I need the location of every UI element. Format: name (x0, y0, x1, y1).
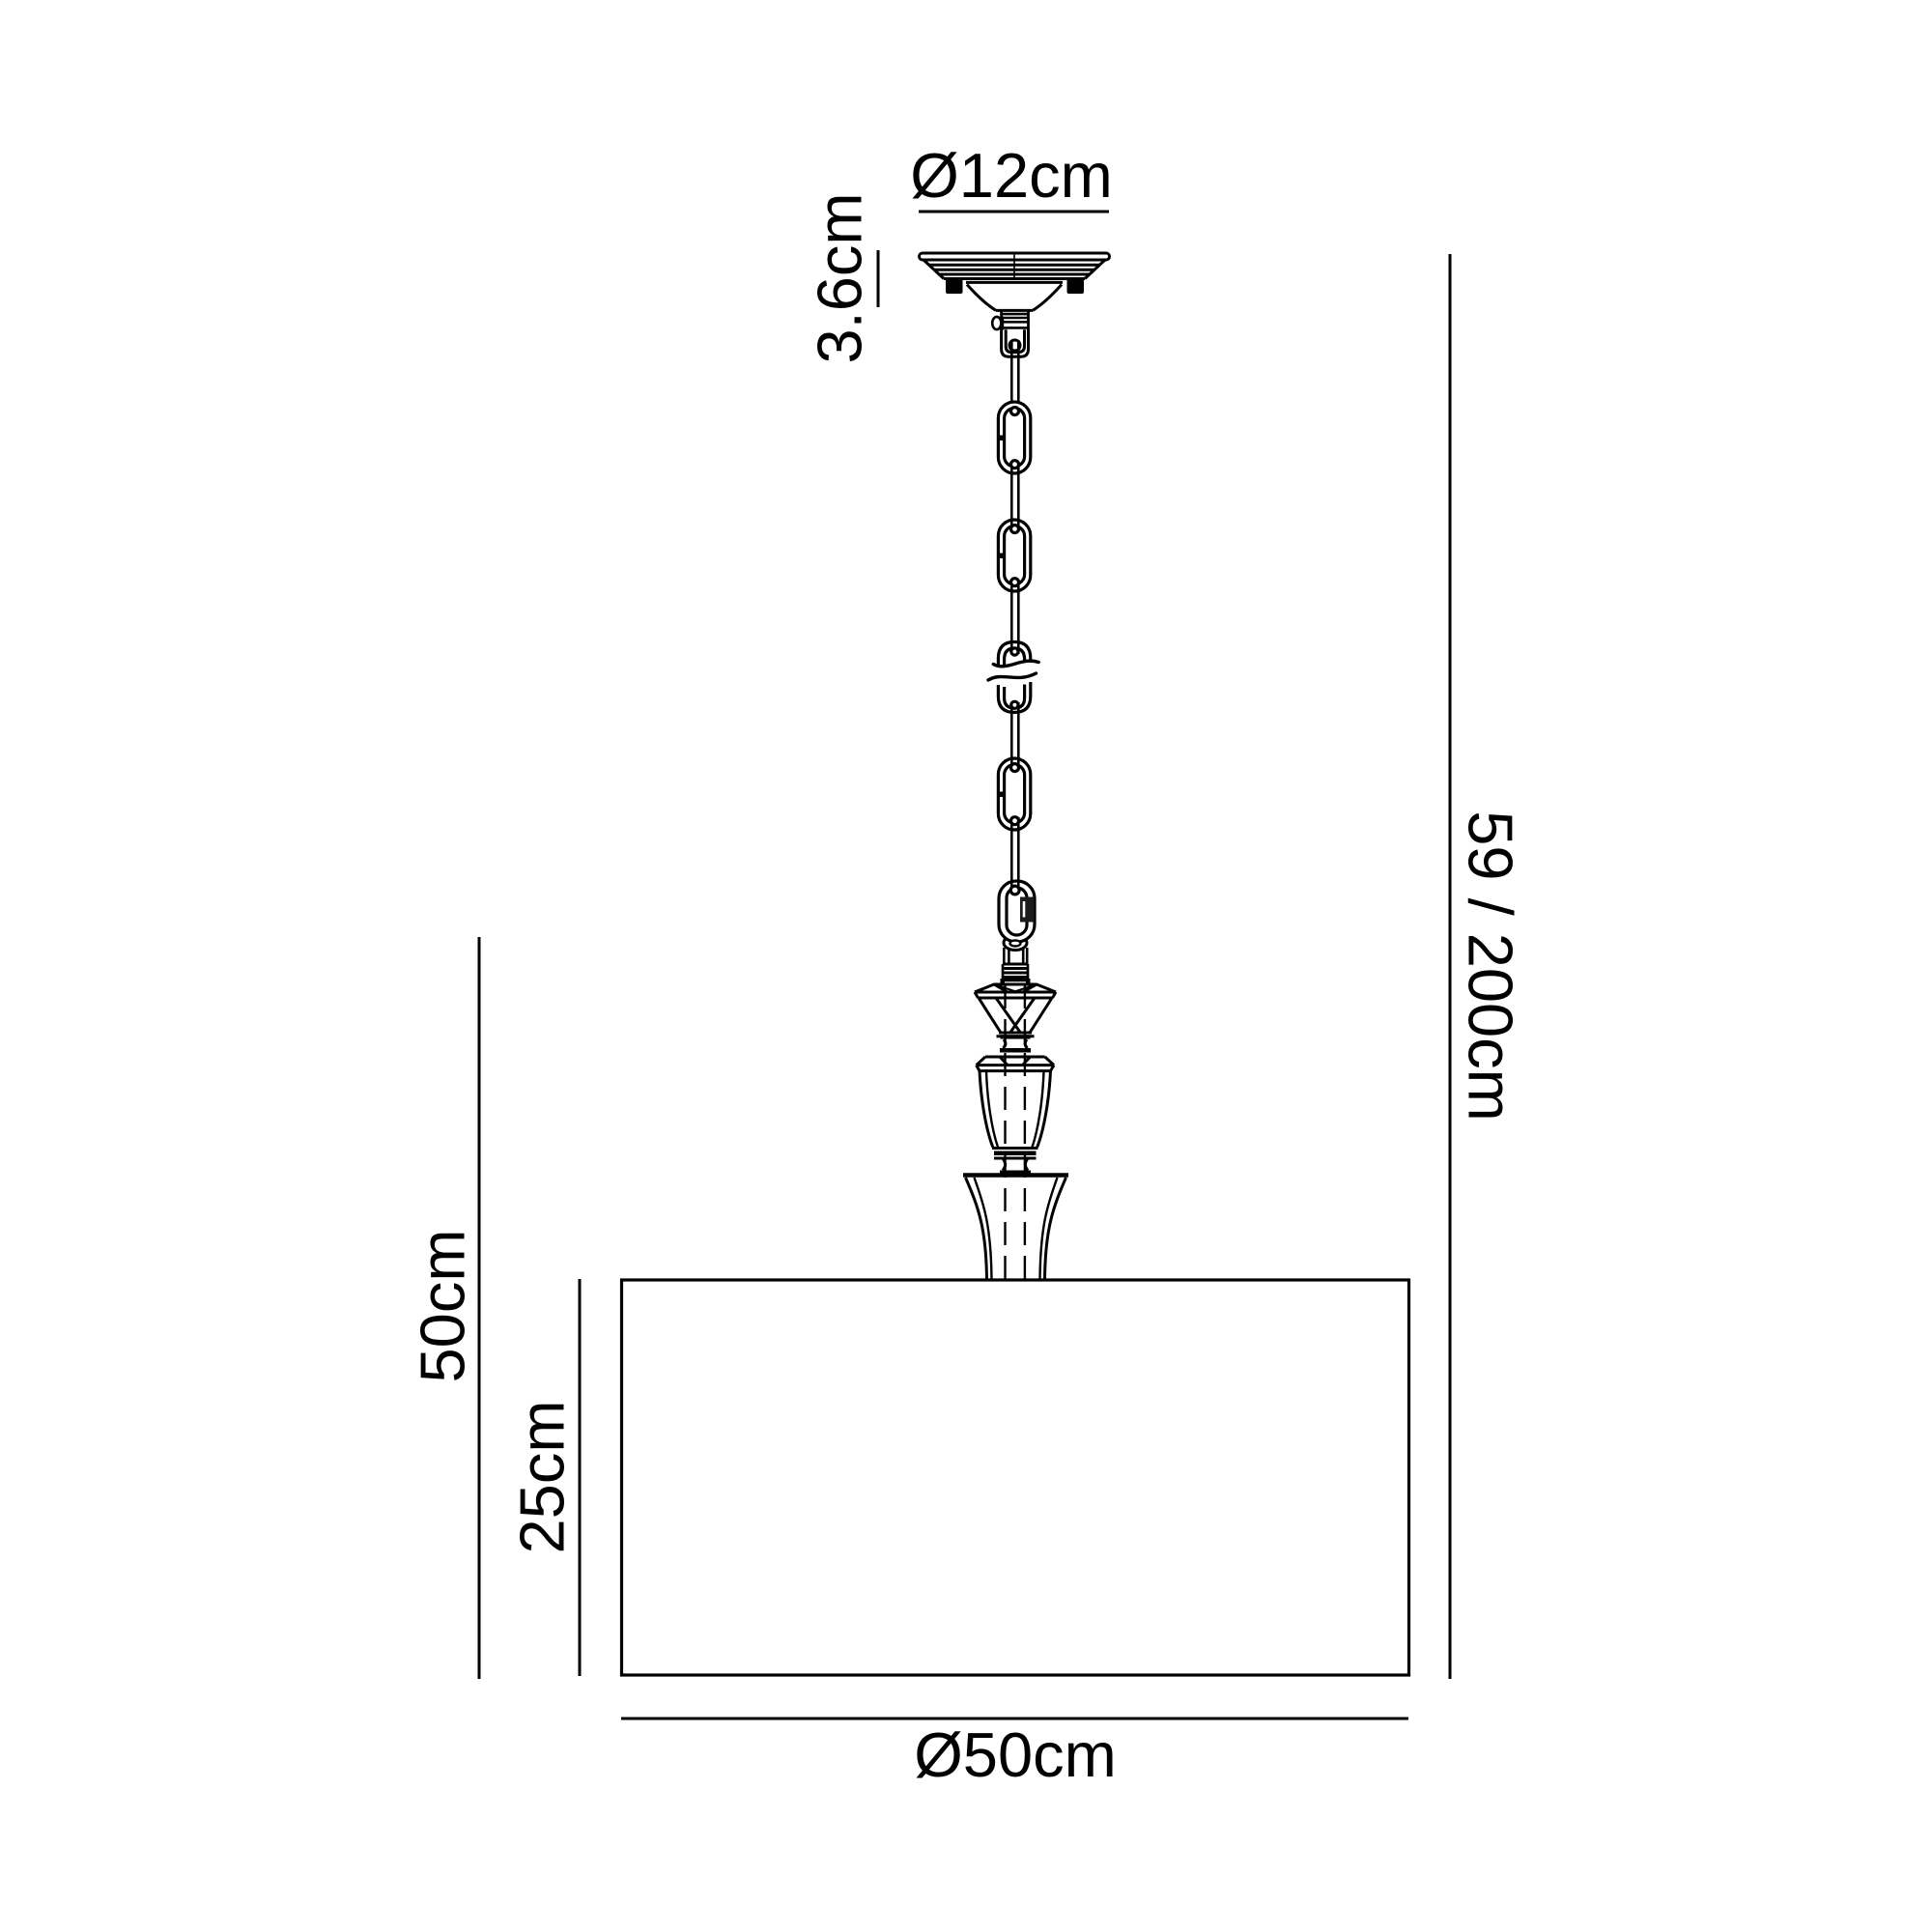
svg-text:Ø50cm: Ø50cm (914, 1719, 1117, 1790)
svg-text:Ø12cm: Ø12cm (910, 140, 1113, 211)
svg-text:3.6cm: 3.6cm (805, 192, 875, 363)
svg-text:59 / 200cm: 59 / 200cm (1456, 810, 1526, 1122)
svg-text:50cm: 50cm (408, 1230, 478, 1383)
svg-text:25cm: 25cm (507, 1401, 578, 1554)
